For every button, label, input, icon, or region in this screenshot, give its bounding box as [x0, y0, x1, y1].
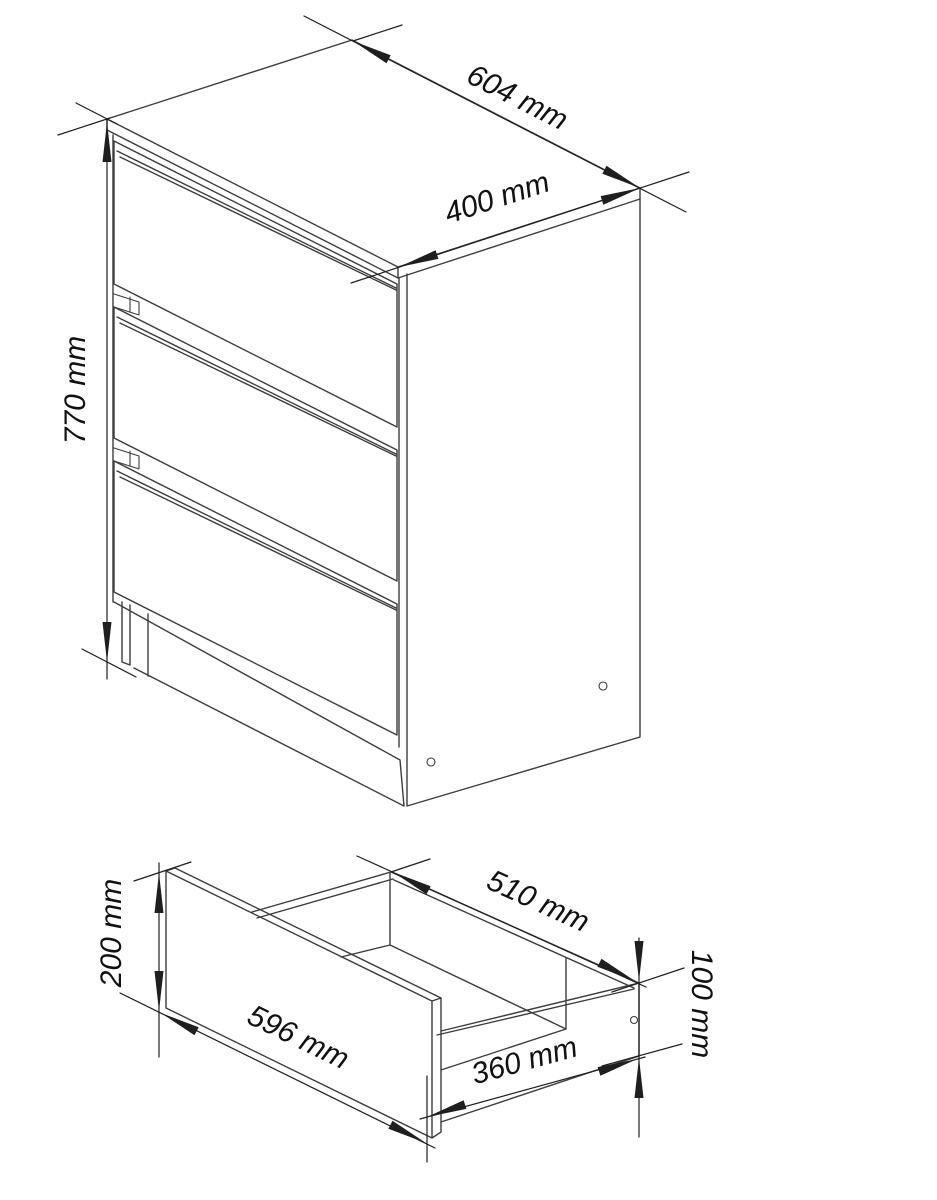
dimension-cabinet-height: 770 mm	[58, 103, 136, 679]
cabinet-base	[114, 602, 404, 806]
dimension-drawer-side-height: 100 mm	[602, 938, 718, 1137]
dimension-drawer-depth: 360 mm	[420, 1030, 645, 1119]
arrow-downleft-icon	[427, 1100, 466, 1117]
dim-label-drawer-depth: 360 mm	[468, 1030, 581, 1091]
screw-hole-2	[427, 758, 435, 766]
drawer-front-panel	[166, 868, 441, 1138]
arrow-upleft-icon	[393, 872, 431, 894]
dim-label-cabinet-height: 770 mm	[59, 336, 92, 444]
dimension-drawer-front-width: 596 mm	[120, 993, 435, 1162]
dim-label-drawer-front-width: 596 mm	[242, 999, 354, 1076]
drawer-drawing: 200 mm 596 mm 510 mm 360 mm	[95, 856, 718, 1162]
cabinet-drawer-front-1	[114, 141, 397, 427]
arrow-down-icon	[635, 941, 644, 981]
arrow-downleft-icon	[399, 250, 438, 267]
dimension-drawer-front-height: 200 mm	[95, 862, 191, 1057]
cabinet-top-face	[107, 40, 640, 278]
screw-hole-3	[631, 1017, 638, 1024]
arrow-upleft-icon	[353, 41, 391, 63]
arrow-down-icon	[103, 622, 112, 662]
dim-label-drawer-front-height: 200 mm	[95, 879, 128, 988]
arrow-downright-icon	[597, 959, 635, 981]
dim-label-cabinet-width: 400 mm	[440, 166, 553, 231]
drawer-gap-notch-2	[114, 448, 139, 469]
arrow-up-icon	[155, 873, 164, 913]
arrow-downright-icon	[602, 166, 640, 188]
dim-label-drawer-side-height: 100 mm	[685, 950, 718, 1058]
cabinet-drawer-front-2	[114, 307, 397, 581]
drawer-gap-notch-1	[114, 294, 139, 315]
furniture-dimension-drawing: 770 mm 604 mm 400 mm	[0, 0, 937, 1200]
cabinet-drawer-front-3	[114, 461, 397, 735]
dimension-drawer-inner-width: 510 mm	[357, 856, 646, 987]
screw-hole-1	[599, 682, 607, 690]
cabinet-drawing: 770 mm 604 mm 400 mm	[58, 16, 689, 806]
arrow-up-icon	[635, 1058, 644, 1098]
cabinet-side-panel	[399, 199, 640, 806]
arrow-upleft-icon	[161, 1013, 199, 1035]
arrow-upright-icon	[601, 188, 640, 205]
arrow-down-icon	[155, 971, 164, 1011]
arrow-up-icon	[103, 122, 112, 162]
